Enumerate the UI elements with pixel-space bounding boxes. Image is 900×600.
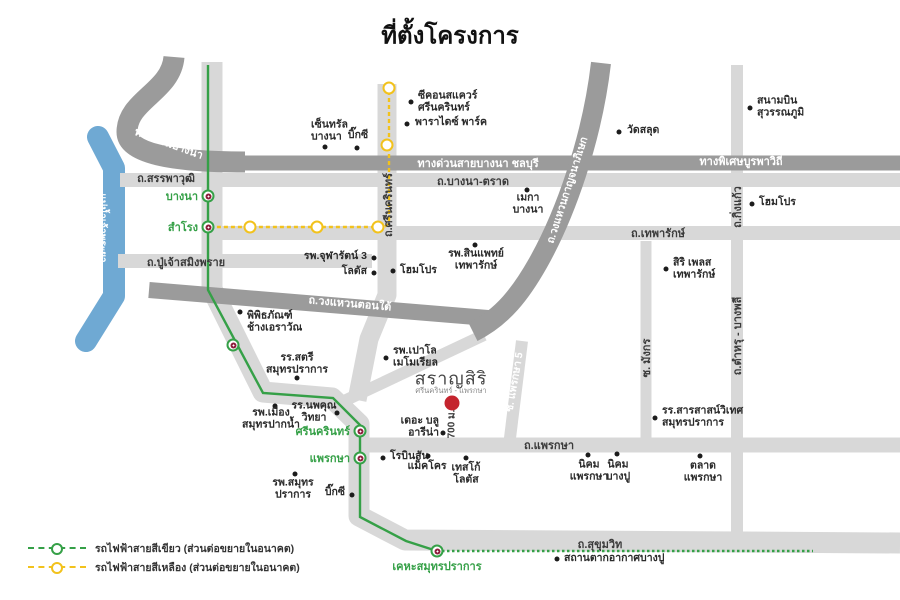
road-label: ถ.สรรพาวุฒิ: [137, 169, 195, 187]
road-label: ถ.กิ่งแก้ว: [728, 186, 746, 228]
suvarnabhumi-airport-label: สนามบินสุวรรณภูมิ: [757, 95, 804, 118]
sarasas-school-label: รร.สารสาสน์วิเทศสมุทรปราการ: [662, 405, 743, 428]
makro-label: แม็คโคร: [407, 461, 446, 473]
station-label: แพรกษา: [310, 449, 350, 467]
yellow-station-circle: [311, 221, 324, 234]
bigc-bangna-label: บิ๊กซี: [348, 130, 368, 142]
yellow-station-circle: [381, 139, 394, 152]
bangpu-recreation-dot: [555, 557, 560, 562]
yellow-station-circle: [383, 82, 396, 95]
makro-dot: [426, 454, 431, 459]
central-bangna-dot: [323, 145, 328, 150]
suvarnabhumi-airport-dot: [748, 106, 753, 111]
satri-school-dot: [295, 376, 300, 381]
project-marker: [445, 396, 460, 411]
mega-bangna-label: เมกาบางนา: [513, 192, 544, 215]
talat-phraeksa-label: ตลาดแพรกษา: [684, 460, 723, 483]
blue-arena-label: เดอะ บลูอารีน่า: [401, 415, 439, 438]
road-label: ถ.แพรกษา: [524, 436, 574, 454]
blue-arena-dot: [441, 431, 446, 436]
wat-salud-label: วัดสลุด: [627, 125, 659, 137]
legend-label: รถไฟฟ้าสายสีเหลือง (ส่วนต่อขยายในอนาคต): [95, 559, 300, 576]
station-icon: [227, 339, 240, 352]
homepro-kingkaew-label: โฮมโปร: [759, 197, 796, 209]
satri-school-label: รร.สตรีสมุทรปราการ: [266, 352, 328, 375]
homepro-srinakarin-dot: [391, 269, 396, 274]
legend-row-yellow: รถไฟฟ้าสายสีเหลือง (ส่วนต่อขยายในอนาคต): [28, 558, 300, 577]
station-icon: [431, 545, 444, 558]
bigc-south-dot: [350, 493, 355, 498]
road-label: ถ.สุขุมวิท: [578, 535, 623, 553]
project-location-map: ทางด่วนบางนาถ.สรรพาวุฒิทางด่วนสายบางนา ช…: [0, 0, 900, 600]
robinson-dot: [381, 456, 386, 461]
noppakhun-school-label: รร.นพคุณวิทยา: [291, 400, 336, 423]
bigc-south-label: บิ๊กซี: [325, 487, 345, 499]
nikhom-phraeksa-label: นิคมแพรกษา: [570, 459, 609, 482]
seacon-square-label: ซีคอนสแควร์ศรีนครินทร์: [418, 90, 477, 113]
legend: รถไฟฟ้าสายสีเขียว (ส่วนต่อขยายในอนาคต)รถ…: [28, 539, 300, 577]
erawan-museum-label: พิพิธภัณฑ์ช้างเอราวัณ: [247, 310, 302, 333]
yellow-station-circle: [244, 221, 257, 234]
road-label: ถ.ปู่เจ้าสมิงพราย: [147, 253, 225, 271]
paradise-park-dot: [405, 122, 410, 127]
yellow-station-circle: [372, 221, 385, 234]
labels-layer: ทางด่วนบางนาถ.สรรพาวุฒิทางด่วนสายบางนา ช…: [0, 0, 900, 600]
nikhom-bangpu-dot: [615, 452, 620, 457]
lotus-label: โลตัส: [342, 266, 367, 278]
bigc-bangna-dot: [355, 146, 360, 151]
central-bangna-label: เซ็นทรัลบางนา: [311, 119, 348, 142]
green-line-icon: [28, 542, 86, 555]
paolo-hospital-dot: [384, 356, 389, 361]
tesco-lotus-label: เทสโก้โลตัส: [452, 462, 481, 485]
homepro-kingkaew-dot: [750, 202, 755, 207]
lotus-dot: [372, 271, 377, 276]
station-label: ศรีนครินทร์: [296, 422, 350, 440]
talat-phraeksa-dot: [698, 454, 703, 459]
erawan-museum-dot: [238, 310, 243, 315]
samutprakan-hospital-label: รพ.สมุทรปราการ: [272, 477, 313, 500]
siri-place-dot: [664, 267, 669, 272]
nikhom-bangpu-label: นิคมบางปู: [606, 459, 630, 482]
homepro-srinakarin-label: โฮมโปร: [400, 265, 437, 277]
road-label: ซ. มังกร: [637, 339, 655, 378]
station-icon: [202, 221, 215, 234]
tesco-lotus-dot: [464, 456, 469, 461]
road-label: ซ. แพรกษา 5: [500, 351, 527, 413]
road-label: แม่น้ำเจ้าพระยา: [95, 193, 110, 262]
station-label: สำโรง: [168, 218, 198, 236]
wat-salud-dot: [617, 130, 622, 135]
road-label: ทางด่วนสายบางนา ชลบุรี: [417, 154, 538, 172]
chularat3-hospital-label: รพ.จุฬารัตน์ 3: [304, 251, 367, 263]
road-label: ถ.ตำหรุ - บางพลี: [728, 297, 746, 376]
siri-place-label: สิริ เพลสเทพารักษ์: [673, 257, 715, 280]
road-label: ทางด่วนบางนา: [132, 122, 206, 163]
seacon-square-dot: [409, 100, 414, 105]
station-label: บางนา: [166, 187, 198, 205]
road-label: ทางพิเศษบูรพาวิถี: [699, 152, 782, 170]
yellow-line-icon: [28, 561, 86, 574]
road-label: 700 ม.: [445, 410, 460, 439]
road-label: ถ.วงแหวนกาญจนาภิเษก: [542, 134, 593, 245]
chularat3-hospital-dot: [372, 256, 377, 261]
road-label: ถ.วงแหวนตอนใต้: [308, 290, 392, 315]
station-icon: [354, 452, 367, 465]
road-label: ถ.เทพารักษ์: [631, 224, 685, 242]
paradise-park-label: พาราไดซ์ พาร์ค: [415, 117, 487, 129]
legend-label: รถไฟฟ้าสายสีเขียว (ส่วนต่อขยายในอนาคต): [95, 540, 294, 557]
bangpu-recreation-label: สถานตากอากาศบางปู: [564, 553, 664, 565]
station-icon: [354, 425, 367, 438]
sarasas-school-dot: [653, 416, 658, 421]
legend-row-green: รถไฟฟ้าสายสีเขียว (ส่วนต่อขยายในอนาคต): [28, 539, 300, 558]
nikhom-phraeksa-dot: [586, 453, 591, 458]
station-label: เคหะสมุทรปราการ: [392, 557, 481, 575]
map-title: ที่ตั้งโครงการ: [381, 16, 519, 55]
station-icon: [202, 190, 215, 203]
road-label: ถ.บางนา-ตราด: [437, 172, 509, 190]
sinphaet-hospital-label: รพ.สินแพทย์เทพารักษ์: [448, 248, 504, 271]
